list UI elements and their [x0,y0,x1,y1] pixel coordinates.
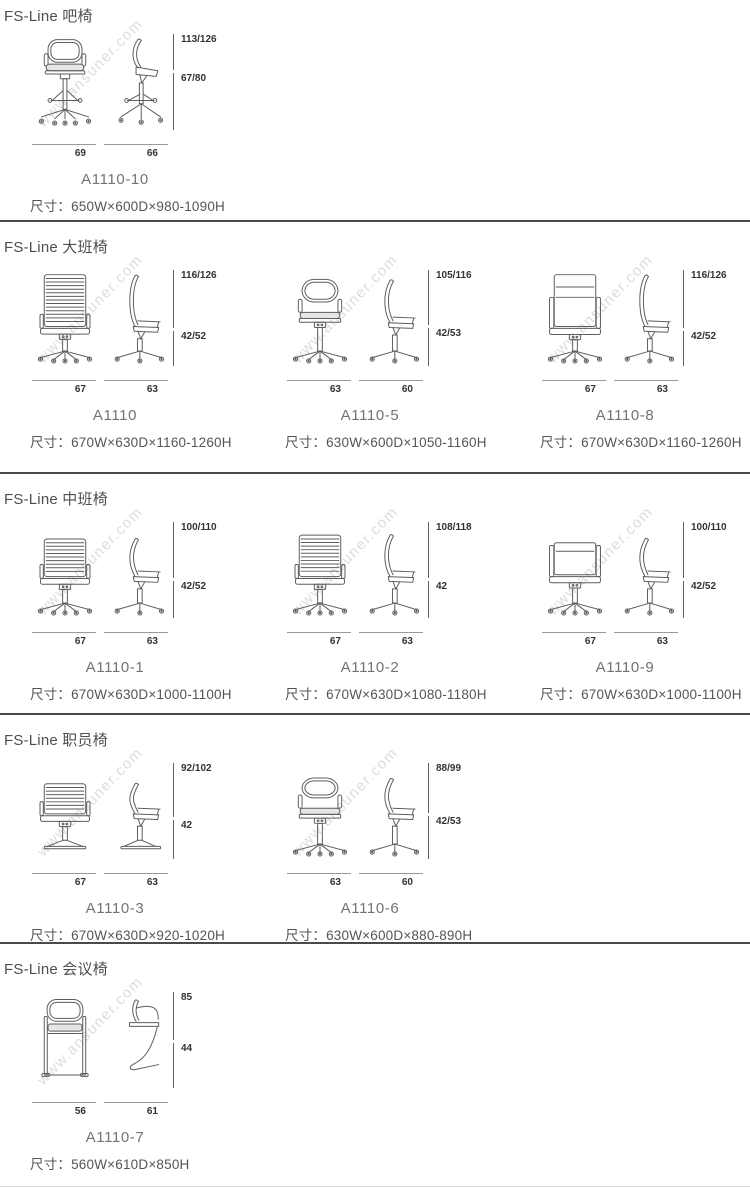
section-bar-chair: FS-Line 吧椅 www.ansuner.com113/12667/8069… [0,0,750,220]
product-card: www.ansuner.com116/12642/526763A1110-8尺寸… [540,269,750,451]
side-view-drawing [359,762,425,862]
width-dimension-side: 61 [104,1102,168,1117]
product-row: www.ansuner.com100/11042/526763A1110-1尺寸… [0,521,750,703]
height-seat-label: 42/52 [691,582,716,592]
width-dimension-front: 67 [542,380,606,395]
technical-drawing: www.ansuner.com116/12642/52 [540,269,750,369]
width-front-value: 56 [32,1107,96,1117]
product-card: www.ansuner.com113/12667/806966A1110-10尺… [30,33,250,215]
height-total-label: 116/126 [691,271,727,281]
front-view-drawing [287,762,353,862]
side-view-drawing [614,269,680,369]
section-staff-chair: FS-Line 职员椅 www.ansuner.com92/102426763A… [0,713,750,942]
size-spec: 尺寸：560W×610D×850H [30,1153,250,1173]
product-card: www.ansuner.com100/11042/526763A1110-9尺寸… [540,521,750,703]
width-side-value: 60 [359,878,423,888]
width-side-value: 63 [614,385,678,395]
width-dimension-side: 63 [614,380,678,395]
product-card: www.ansuner.com116/12642/526763A1110尺寸：6… [30,269,250,451]
dimension-line [32,1102,96,1103]
height-total-label: 92/102 [181,764,212,774]
width-dimension-front: 69 [32,144,96,159]
width-dimension-side: 63 [614,632,678,647]
catalog-page: FS-Line 吧椅 www.ansuner.com113/12667/8069… [0,0,750,1187]
width-dimensions: 6763 [30,380,250,402]
front-view-drawing [32,762,98,862]
dimension-line [287,873,351,874]
width-side-value: 63 [104,878,168,888]
size-spec: 尺寸：670W×630D×1160-1260H [30,431,250,451]
height-dimension-line [428,269,429,369]
width-dimensions: 6360 [285,873,505,895]
section-midback-chair: FS-Line 中班椅 www.ansuner.com100/11042/526… [0,472,750,713]
technical-drawing: www.ansuner.com108/11842 [285,521,505,621]
width-dimensions: 5661 [30,1102,250,1124]
dimension-line [32,873,96,874]
technical-drawing: www.ansuner.com100/11042/52 [30,521,250,621]
width-dimension-side: 63 [104,873,168,888]
dimension-line [32,380,96,381]
side-view-drawing [614,521,680,621]
size-spec: 尺寸：670W×630D×920-1020H [30,924,250,944]
width-side-value: 63 [359,637,423,647]
width-dimension-side: 63 [359,632,423,647]
dimension-line [32,632,96,633]
height-dimension-line [173,762,174,862]
front-view-drawing [287,521,353,621]
product-card: www.ansuner.com105/11642/536360A1110-5尺寸… [285,269,505,451]
width-dimensions: 6763 [540,632,750,654]
model-number: A1110-10 [30,171,200,188]
width-dimensions: 6966 [30,144,250,166]
height-seat-label: 42/52 [181,582,206,592]
height-dimension-line [173,991,174,1091]
dimension-line [614,632,678,633]
side-view-drawing [104,521,170,621]
dimension-line [359,380,423,381]
side-view-drawing [104,33,170,133]
height-seat-label: 42/53 [436,817,461,827]
width-dimension-front: 56 [32,1102,96,1117]
height-total-label: 116/126 [181,271,217,281]
width-front-value: 67 [32,385,96,395]
technical-drawing: www.ansuner.com92/10242 [30,762,250,862]
width-side-value: 66 [104,149,168,159]
size-spec: 尺寸：630W×600D×1050-1160H [285,431,505,451]
model-number: A1110-5 [285,407,455,424]
height-seat-label: 42/53 [436,329,461,339]
width-side-value: 63 [614,637,678,647]
side-view-drawing [104,269,170,369]
size-spec: 尺寸：670W×630D×1160-1260H [540,431,750,451]
width-dimension-front: 67 [287,632,351,647]
product-row: www.ansuner.com92/102426763A1110-3尺寸：670… [0,762,750,944]
technical-drawing: www.ansuner.com105/11642/53 [285,269,505,369]
size-spec: 尺寸：650W×600D×980-1090H [30,195,250,215]
width-side-value: 60 [359,385,423,395]
product-card: www.ansuner.com92/102426763A1110-3尺寸：670… [30,762,250,944]
section-title: FS-Line 中班椅 [0,474,750,509]
dimension-line [287,380,351,381]
side-view-drawing [104,762,170,862]
dimension-line [542,380,606,381]
front-view-drawing [32,521,98,621]
height-dimension-line [173,269,174,369]
width-dimension-side: 66 [104,144,168,159]
width-front-value: 63 [287,878,351,888]
section-conference-chair: FS-Line 会议椅 www.ansuner.com85445661A1110… [0,942,750,1187]
model-number: A1110 [30,407,200,424]
width-front-value: 67 [32,637,96,647]
model-number: A1110-9 [540,659,710,676]
height-total-label: 105/116 [436,271,472,281]
height-total-label: 85 [181,993,192,1003]
technical-drawing: www.ansuner.com100/11042/52 [540,521,750,621]
dimension-line [104,380,168,381]
size-spec: 尺寸：630W×600D×880-890H [285,924,505,944]
model-number: A1110-1 [30,659,200,676]
dimension-line [104,1102,168,1103]
width-front-value: 69 [32,149,96,159]
model-number: A1110-6 [285,900,455,917]
side-view-drawing [359,269,425,369]
height-total-label: 100/110 [181,523,217,533]
dimension-line [287,632,351,633]
section-title: FS-Line 会议椅 [0,944,750,979]
technical-drawing: www.ansuner.com116/12642/52 [30,269,250,369]
product-row: www.ansuner.com113/12667/806966A1110-10尺… [0,33,750,215]
width-dimension-front: 67 [32,380,96,395]
product-row: www.ansuner.com85445661A1110-7尺寸：560W×61… [0,991,750,1173]
width-front-value: 63 [287,385,351,395]
height-dimension-line [683,269,684,369]
front-view-drawing [542,521,608,621]
product-card: www.ansuner.com108/118426763A1110-2尺寸：67… [285,521,505,703]
width-front-value: 67 [287,637,351,647]
dimension-line [104,632,168,633]
front-view-drawing [32,991,98,1091]
width-dimensions: 6763 [540,380,750,402]
height-dimension-line [428,762,429,862]
width-side-value: 61 [104,1107,168,1117]
front-view-drawing [32,33,98,133]
width-dimension-front: 67 [32,632,96,647]
section-executive-chair: FS-Line 大班椅 www.ansuner.com116/12642/526… [0,220,750,472]
size-spec: 尺寸：670W×630D×1000-1100H [540,683,750,703]
height-dimension-line [428,521,429,621]
height-total-label: 108/118 [436,523,472,533]
height-dimension-line [173,33,174,133]
width-front-value: 67 [32,878,96,888]
model-number: A1110-8 [540,407,710,424]
height-total-label: 100/110 [691,523,727,533]
height-dimension-line [173,521,174,621]
size-spec: 尺寸：670W×630D×1080-1180H [285,683,505,703]
width-dimension-front: 67 [542,632,606,647]
height-seat-label: 42 [181,821,192,831]
product-card: www.ansuner.com85445661A1110-7尺寸：560W×61… [30,991,250,1173]
model-number: A1110-7 [30,1129,200,1146]
front-view-drawing [287,269,353,369]
dimension-line [542,632,606,633]
dimension-line [359,873,423,874]
height-seat-label: 67/80 [181,74,206,84]
width-dimension-side: 60 [359,380,423,395]
technical-drawing: www.ansuner.com113/12667/80 [30,33,250,133]
dimension-line [104,144,168,145]
model-number: A1110-3 [30,900,200,917]
technical-drawing: www.ansuner.com88/9942/53 [285,762,505,862]
product-row: www.ansuner.com116/12642/526763A1110尺寸：6… [0,269,750,451]
product-card: www.ansuner.com88/9942/536360A1110-6尺寸：6… [285,762,505,944]
dimension-line [614,380,678,381]
dimension-line [104,873,168,874]
section-title: FS-Line 职员椅 [0,715,750,750]
width-dimensions: 6763 [30,632,250,654]
width-dimension-side: 63 [104,632,168,647]
width-dimension-front: 63 [287,380,351,395]
side-view-drawing [359,521,425,621]
width-side-value: 63 [104,637,168,647]
section-title: FS-Line 大班椅 [0,222,750,257]
width-dimensions: 6360 [285,380,505,402]
height-seat-label: 42/52 [181,332,206,342]
width-dimensions: 6763 [285,632,505,654]
product-card: www.ansuner.com100/11042/526763A1110-1尺寸… [30,521,250,703]
side-view-drawing [104,991,170,1091]
section-title: FS-Line 吧椅 [0,0,750,26]
height-seat-label: 42/52 [691,332,716,342]
width-dimension-front: 67 [32,873,96,888]
width-dimensions: 6763 [30,873,250,895]
technical-drawing: www.ansuner.com8544 [30,991,250,1091]
model-number: A1110-2 [285,659,455,676]
height-seat-label: 42 [436,582,447,592]
size-spec: 尺寸：670W×630D×1000-1100H [30,683,250,703]
width-dimension-side: 60 [359,873,423,888]
height-dimension-line [683,521,684,621]
front-view-drawing [542,269,608,369]
width-front-value: 67 [542,637,606,647]
height-total-label: 113/126 [181,35,217,45]
height-seat-label: 44 [181,1044,192,1054]
width-dimension-side: 63 [104,380,168,395]
width-dimension-front: 63 [287,873,351,888]
width-front-value: 67 [542,385,606,395]
dimension-line [32,144,96,145]
front-view-drawing [32,269,98,369]
dimension-line [359,632,423,633]
width-side-value: 63 [104,385,168,395]
height-total-label: 88/99 [436,764,461,774]
